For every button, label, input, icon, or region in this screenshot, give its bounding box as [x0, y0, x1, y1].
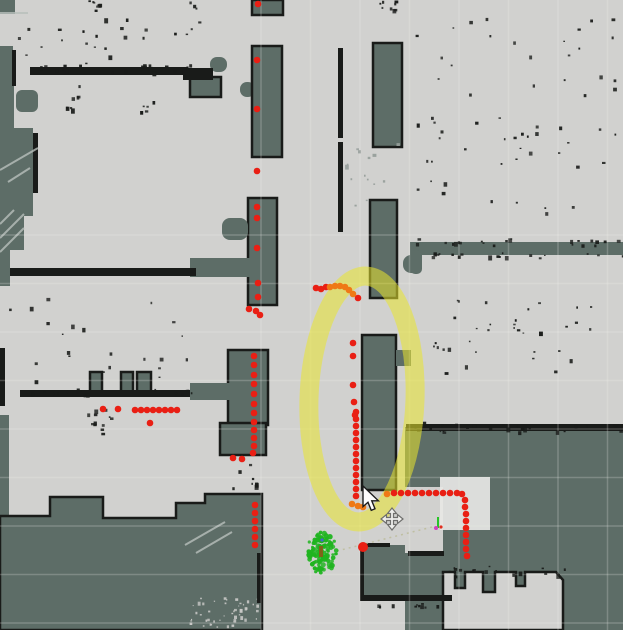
map-canvas[interactable]	[0, 0, 623, 630]
rviz-map-viewport[interactable]	[0, 0, 623, 630]
